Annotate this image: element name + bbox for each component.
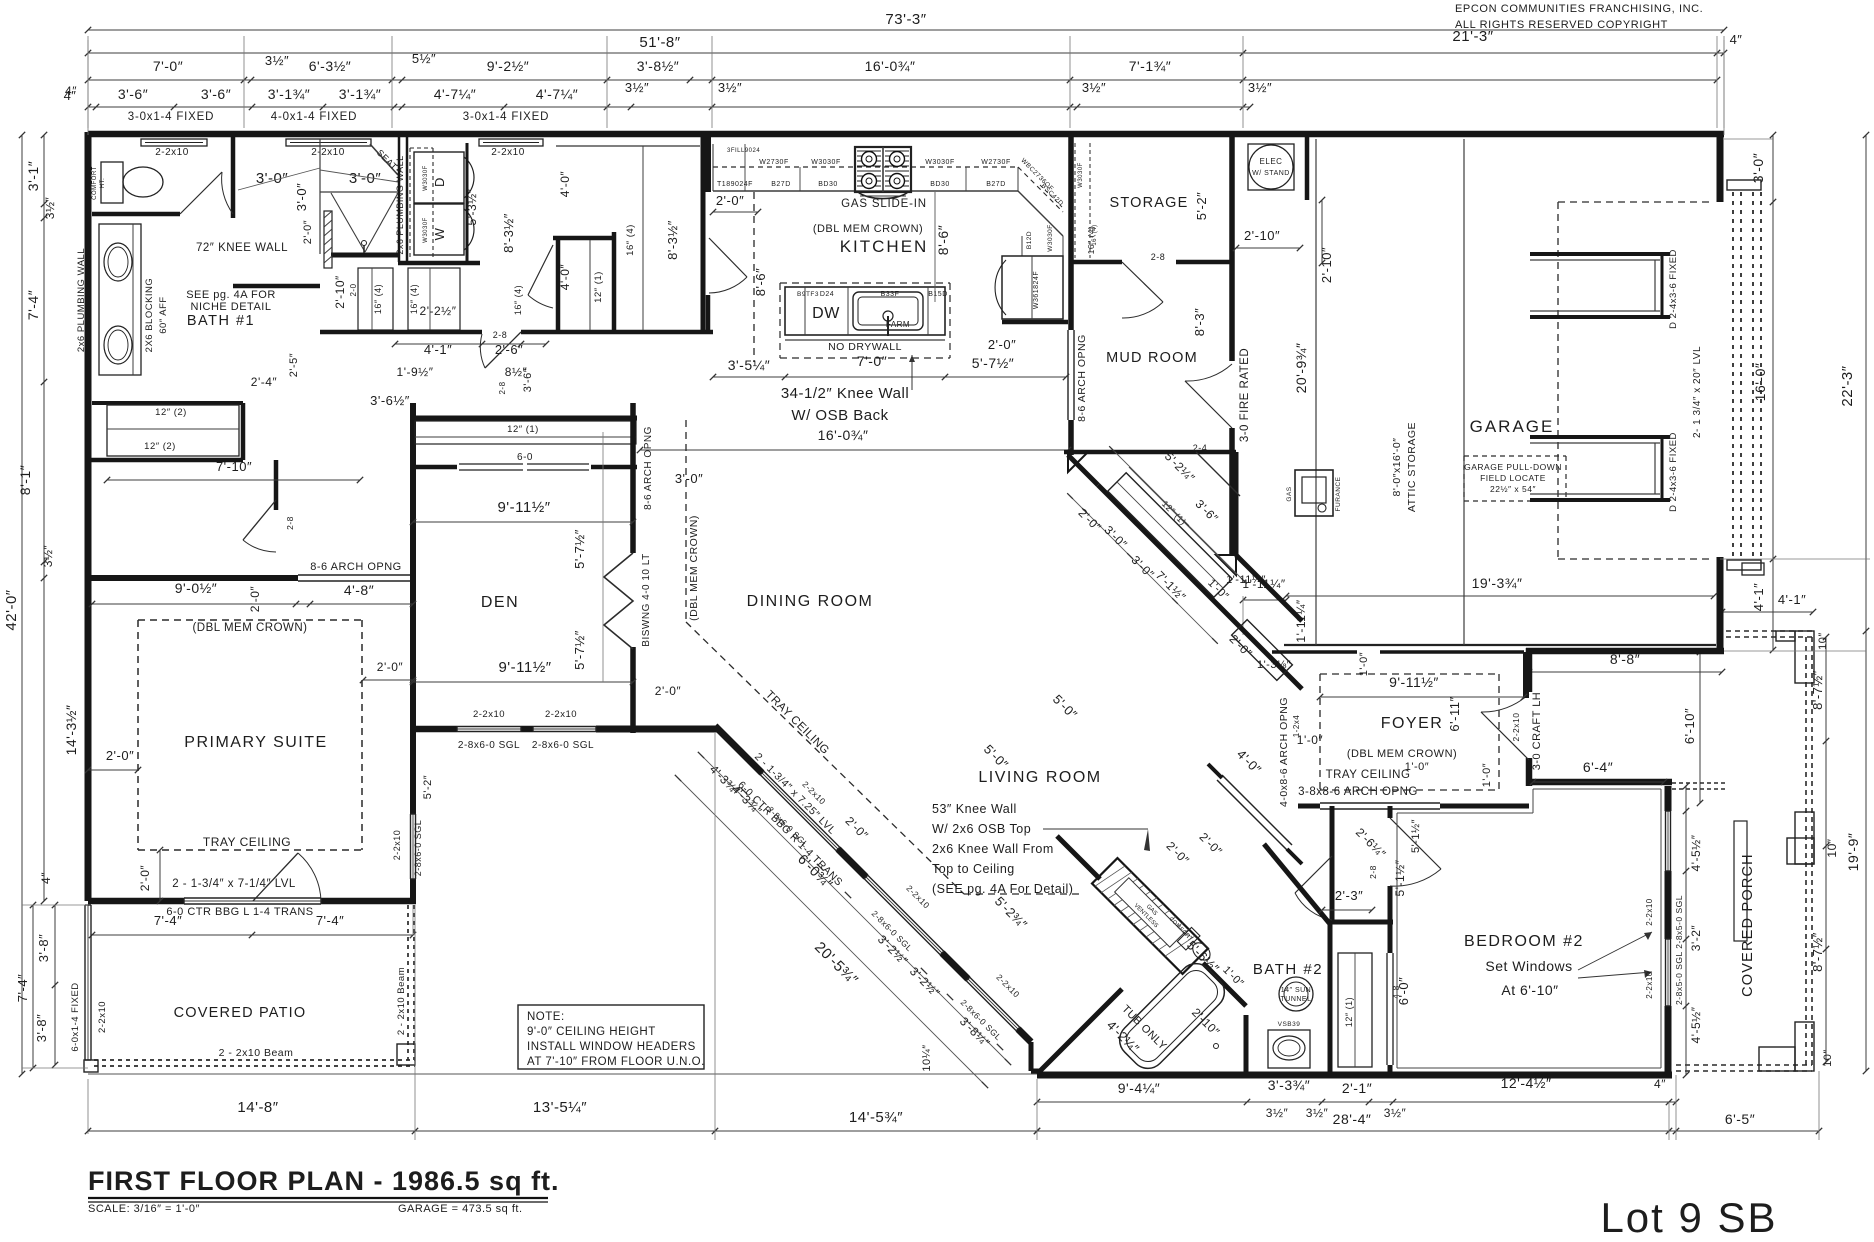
svg-text:2-2x10: 2-2x10 — [1511, 713, 1521, 742]
svg-text:7'-4″: 7'-4″ — [25, 290, 41, 320]
svg-text:COMFORT: COMFORT — [92, 166, 98, 200]
svg-text:3FILL9024: 3FILL9024 — [727, 148, 760, 154]
svg-text:12″ (2): 12″ (2) — [155, 407, 187, 418]
svg-text:DINING ROOM: DINING ROOM — [747, 593, 874, 610]
svg-text:2-2x10: 2-2x10 — [155, 147, 189, 158]
svg-text:(DBL MEM CROWN): (DBL MEM CROWN) — [688, 515, 700, 621]
svg-text:7'-4″: 7'-4″ — [316, 913, 344, 928]
svg-text:(DBL MEM CROWN): (DBL MEM CROWN) — [192, 622, 307, 634]
svg-text:3½″: 3½″ — [1266, 1106, 1289, 1120]
svg-text:8'-3″: 8'-3″ — [1192, 308, 1207, 336]
svg-text:KITCHEN: KITCHEN — [840, 237, 929, 256]
svg-text:16″ (4): 16″ (4) — [1086, 226, 1096, 255]
svg-text:4'-1″: 4'-1″ — [1751, 583, 1766, 611]
svg-text:GARAGE: GARAGE — [1470, 417, 1555, 436]
svg-text:D 2-4x3-6 FIXED: D 2-4x3-6 FIXED — [1668, 249, 1679, 329]
svg-text:3½″: 3½″ — [1248, 80, 1272, 95]
svg-text:(DBL MEM CROWN): (DBL MEM CROWN) — [813, 223, 923, 235]
svg-text:2-8: 2-8 — [285, 516, 295, 530]
svg-text:Lot 9 SB: Lot 9 SB — [1600, 1194, 1777, 1241]
svg-text:7'-4″: 7'-4″ — [15, 974, 30, 1002]
svg-text:VSB39: VSB39 — [1278, 1021, 1301, 1028]
svg-text:3'-6½″: 3'-6½″ — [370, 393, 410, 408]
svg-text:At 6'-10″: At 6'-10″ — [1501, 982, 1558, 998]
svg-text:8-6 ARCH OPNG: 8-6 ARCH OPNG — [643, 426, 654, 510]
svg-text:EPCON COMMUNITIES FRANCHISING,: EPCON COMMUNITIES FRANCHISING, INC. — [1455, 3, 1703, 15]
svg-text:2'-4″: 2'-4″ — [251, 375, 278, 389]
svg-text:3'-0″: 3'-0″ — [256, 170, 289, 187]
svg-text:NOTE:: NOTE: — [527, 1011, 565, 1023]
svg-text:DEN: DEN — [481, 594, 519, 611]
svg-text:6'-4″: 6'-4″ — [1583, 759, 1613, 775]
svg-text:14'-5¾″: 14'-5¾″ — [849, 1109, 903, 1126]
svg-text:COVERED PATIO: COVERED PATIO — [174, 1005, 307, 1021]
svg-text:2'-1″: 2'-1″ — [1342, 1080, 1372, 1096]
svg-text:1'-0″: 1'-0″ — [1481, 763, 1493, 787]
svg-text:GAS: GAS — [1286, 486, 1293, 501]
svg-text:14'-3½″: 14'-3½″ — [63, 705, 79, 756]
svg-text:2 - 2x10 Beam: 2 - 2x10 Beam — [396, 967, 407, 1035]
svg-text:2-2x10: 2-2x10 — [473, 709, 505, 720]
svg-text:2-2x10: 2-2x10 — [491, 147, 525, 158]
svg-text:10¼″: 10¼″ — [921, 1044, 933, 1071]
svg-text:3-8x8-6 ARCH OPNG: 3-8x8-6 ARCH OPNG — [1298, 786, 1418, 798]
svg-text:9'-11½″: 9'-11½″ — [497, 499, 550, 516]
svg-text:W2730F: W2730F — [981, 159, 1010, 166]
svg-text:6-0: 6-0 — [517, 452, 533, 463]
svg-text:2-8: 2-8 — [1151, 252, 1166, 262]
svg-text:6'-10″: 6'-10″ — [1682, 708, 1697, 744]
svg-text:2-2x10: 2-2x10 — [545, 709, 577, 720]
svg-text:3'-6″: 3'-6″ — [118, 86, 148, 102]
svg-text:3'-6″: 3'-6″ — [522, 368, 534, 392]
svg-text:2-2x10: 2-2x10 — [1645, 971, 1654, 999]
svg-text:2-8x5-0 SGL 2-8x5-0 SGL: 2-8x5-0 SGL 2-8x5-0 SGL — [1674, 895, 1684, 1005]
svg-text:SEE pg. 4A FOR: SEE pg. 4A FOR — [186, 289, 276, 301]
svg-text:B33F: B33F — [881, 291, 900, 298]
svg-text:73'-3″: 73'-3″ — [885, 11, 926, 28]
svg-text:STORAGE: STORAGE — [1109, 195, 1188, 211]
svg-text:2'-0″: 2'-0″ — [988, 337, 1016, 352]
svg-text:W3030F: W3030F — [925, 159, 954, 166]
svg-text:4'-8″: 4'-8″ — [344, 582, 374, 598]
svg-text:4'-5½″: 4'-5½″ — [1689, 1006, 1703, 1043]
svg-text:AT 7'-10″ FROM FLOOR U.N.O.: AT 7'-10″ FROM FLOOR U.N.O. — [527, 1056, 705, 1068]
svg-text:2-8x6-0 SGL: 2-8x6-0 SGL — [458, 740, 520, 751]
svg-text:BISWNG 4-0 10 LT: BISWNG 4-0 10 LT — [641, 553, 652, 646]
svg-text:4″: 4″ — [1654, 1077, 1666, 1091]
svg-text:4'-0″: 4'-0″ — [558, 171, 572, 198]
svg-text:8'-6″: 8'-6″ — [753, 268, 768, 296]
svg-text:2 - 2x10 Beam: 2 - 2x10 Beam — [219, 1047, 294, 1059]
svg-text:9'-0″ CEILING HEIGHT: 9'-0″ CEILING HEIGHT — [527, 1026, 656, 1038]
svg-text:12″ (1): 12″ (1) — [507, 424, 539, 435]
svg-text:10″: 10″ — [1825, 838, 1839, 857]
svg-text:TUNNEL: TUNNEL — [1280, 996, 1311, 1003]
svg-text:Set Windows: Set Windows — [1485, 958, 1572, 974]
svg-text:9'-11½″: 9'-11½″ — [1389, 674, 1439, 690]
svg-text:HT.: HT. — [100, 178, 106, 189]
svg-text:Top to Ceiling: Top to Ceiling — [932, 862, 1015, 876]
svg-text:BD30: BD30 — [818, 181, 838, 188]
svg-text:3-0 FIRE RATED: 3-0 FIRE RATED — [1239, 348, 1251, 442]
svg-text:7'-0″: 7'-0″ — [857, 353, 887, 369]
svg-text:3'-1″: 3'-1″ — [25, 161, 41, 191]
svg-text:FARM: FARM — [886, 320, 910, 329]
svg-text:W3030F: W3030F — [423, 217, 429, 243]
svg-text:2-4: 2-4 — [1193, 443, 1208, 453]
svg-text:3'-1¾″: 3'-1¾″ — [268, 86, 311, 102]
svg-text:8'-6″: 8'-6″ — [935, 225, 951, 255]
svg-text:3½″: 3½″ — [1384, 1106, 1407, 1120]
svg-text:5'-7½″: 5'-7½″ — [572, 529, 587, 569]
svg-text:3½″: 3½″ — [718, 80, 742, 95]
svg-text:42'-0″: 42'-0″ — [3, 589, 20, 630]
svg-text:60″ AFF: 60″ AFF — [158, 296, 169, 334]
svg-text:3'-8″: 3'-8″ — [36, 934, 51, 962]
svg-text:12″ (1): 12″ (1) — [1344, 997, 1354, 1027]
svg-text:8'-3½″: 8'-3½″ — [665, 220, 680, 260]
svg-text:2'-0″: 2'-0″ — [377, 660, 404, 674]
svg-text:9'-4¼″: 9'-4¼″ — [1118, 1080, 1161, 1096]
svg-text:3'-1¾″: 3'-1¾″ — [339, 86, 382, 102]
svg-text:2'-0″: 2'-0″ — [655, 684, 682, 698]
svg-text:GARAGE = 473.5 sq ft.: GARAGE = 473.5 sq ft. — [398, 1203, 523, 1215]
svg-text:4'-7¼″: 4'-7¼″ — [434, 86, 477, 102]
svg-text:8'-3½″: 8'-3½″ — [501, 213, 516, 253]
svg-text:16'-0¾″: 16'-0¾″ — [818, 427, 869, 443]
svg-text:TRAY CEILING: TRAY CEILING — [203, 835, 291, 849]
svg-text:3'-0″: 3'-0″ — [1750, 153, 1766, 183]
svg-text:W2730F: W2730F — [759, 159, 788, 166]
svg-text:2-2x10: 2-2x10 — [97, 1001, 108, 1033]
svg-text:T189024F: T189024F — [717, 181, 753, 188]
svg-text:34-1/2″ Knee Wall: 34-1/2″ Knee Wall — [781, 385, 909, 402]
svg-text:1'-0″: 1'-0″ — [1358, 652, 1370, 676]
svg-text:6'-5″: 6'-5″ — [1725, 1111, 1755, 1127]
svg-text:16″ (4): 16″ (4) — [513, 285, 523, 315]
svg-text:2x6 Knee Wall From: 2x6 Knee Wall From — [932, 842, 1054, 856]
svg-text:BD30: BD30 — [930, 181, 950, 188]
svg-text:3-0 CRAFT LH: 3-0 CRAFT LH — [1531, 692, 1543, 771]
svg-text:19'-9″: 19'-9″ — [1845, 833, 1861, 872]
svg-text:10″: 10″ — [1822, 1049, 1834, 1067]
svg-text:12″ (2): 12″ (2) — [144, 441, 176, 452]
svg-text:3'-0″: 3'-0″ — [675, 471, 703, 486]
svg-text:16'-0¾″: 16'-0¾″ — [865, 58, 916, 74]
svg-text:W361824F: W361824F — [1033, 271, 1040, 309]
svg-text:W: W — [432, 227, 447, 240]
svg-text:3'-0″: 3'-0″ — [294, 183, 309, 211]
svg-text:3-0x1-4 FIXED: 3-0x1-4 FIXED — [128, 111, 214, 123]
svg-text:GAS SLIDE-IN: GAS SLIDE-IN — [841, 198, 927, 210]
svg-text:2'-3″: 2'-3″ — [1335, 888, 1363, 903]
svg-text:B27D: B27D — [986, 181, 1006, 188]
svg-text:2'-10″: 2'-10″ — [1319, 247, 1334, 283]
svg-text:W3030F: W3030F — [811, 159, 840, 166]
svg-text:5'-1½″: 5'-1½″ — [1393, 859, 1407, 896]
svg-text:10″: 10″ — [1817, 632, 1829, 650]
svg-text:5'-3½″: 5'-3½″ — [465, 188, 479, 225]
svg-text:5'-2″: 5'-2″ — [1194, 192, 1209, 220]
svg-text:16″ (4): 16″ (4) — [409, 284, 419, 314]
svg-text:2'-5″: 2'-5″ — [288, 353, 300, 377]
svg-text:1'-3⅛″: 1'-3⅛″ — [1257, 659, 1291, 671]
svg-text:14'-8″: 14'-8″ — [237, 1099, 278, 1116]
svg-text:MUD ROOM: MUD ROOM — [1106, 350, 1198, 366]
svg-text:5'-7½″: 5'-7½″ — [972, 355, 1015, 371]
svg-text:8-6 ARCH OPNG: 8-6 ARCH OPNG — [310, 561, 401, 573]
svg-text:5'-2″: 5'-2″ — [422, 775, 434, 799]
svg-text:BATH #1: BATH #1 — [187, 313, 255, 329]
svg-text:2-2x10: 2-2x10 — [1645, 898, 1654, 926]
svg-text:14″ SUN: 14″ SUN — [1281, 987, 1312, 994]
svg-text:BEDROOM #2: BEDROOM #2 — [1464, 933, 1584, 950]
svg-text:9'-0½″: 9'-0½″ — [175, 580, 218, 596]
svg-text:NICHE DETAIL: NICHE DETAIL — [191, 301, 272, 313]
svg-text:4'-1″: 4'-1″ — [1778, 592, 1806, 607]
svg-text:2 - 1-3/4″ x 7-1/4″ LVL: 2 - 1-3/4″ x 7-1/4″ LVL — [172, 878, 296, 890]
svg-text:3'-3¾″: 3'-3¾″ — [1268, 1077, 1311, 1093]
svg-text:W/ OSB Back: W/ OSB Back — [791, 407, 888, 424]
svg-text:D 2-4x3-6 FIXED: D 2-4x3-6 FIXED — [1668, 432, 1679, 512]
svg-text:BATH #2: BATH #2 — [1253, 961, 1323, 978]
svg-text:8-6 ARCH OPNG: 8-6 ARCH OPNG — [1076, 334, 1088, 422]
svg-text:PRIMARY SUITE: PRIMARY SUITE — [184, 734, 327, 751]
svg-text:W/ 2x6 OSB Top: W/ 2x6 OSB Top — [932, 822, 1031, 836]
svg-text:2X6 BLOCKING: 2X6 BLOCKING — [144, 278, 155, 353]
svg-text:GARAGE PULL-DOWN: GARAGE PULL-DOWN — [1464, 462, 1562, 472]
svg-text:4-0x8-6 ARCH OPNG: 4-0x8-6 ARCH OPNG — [1278, 697, 1290, 807]
svg-text:1'-9½″: 1'-9½″ — [397, 365, 434, 379]
svg-text:19'-3¾″: 19'-3¾″ — [1472, 575, 1523, 591]
svg-text:6-0 CTR BBG L 1-4 TRANS: 6-0 CTR BBG L 1-4 TRANS — [166, 906, 313, 918]
svg-text:W3030F: W3030F — [1078, 162, 1084, 188]
svg-text:2x6 PLUMBING WALL: 2x6 PLUMBING WALL — [395, 155, 405, 254]
svg-text:W/ STAND: W/ STAND — [1252, 170, 1290, 177]
svg-text:3½″: 3½″ — [265, 53, 289, 68]
svg-text:TRAY CEILING: TRAY CEILING — [1326, 769, 1411, 781]
svg-text:DW: DW — [812, 305, 840, 322]
svg-text:SCALE: 3/16″ = 1'-0″: SCALE: 3/16″ = 1'-0″ — [88, 1203, 200, 1215]
svg-text:3½″: 3½″ — [1082, 80, 1106, 95]
svg-text:4'-0″: 4'-0″ — [558, 264, 572, 291]
svg-text:4″: 4″ — [1730, 32, 1743, 47]
svg-text:ELEC: ELEC — [1260, 157, 1283, 166]
svg-text:2-8: 2-8 — [493, 330, 508, 340]
svg-text:1'-0″: 1'-0″ — [1405, 761, 1429, 773]
svg-text:3'-8½″: 3'-8½″ — [637, 58, 680, 74]
svg-text:NO DRYWALL: NO DRYWALL — [828, 341, 902, 353]
svg-text:COVERED PORCH: COVERED PORCH — [1740, 853, 1756, 997]
svg-text:6'-0″: 6'-0″ — [1396, 977, 1411, 1005]
svg-text:W3030F: W3030F — [1047, 224, 1054, 252]
svg-text:9'-2½″: 9'-2½″ — [487, 58, 530, 74]
svg-text:B9TF3: B9TF3 — [797, 291, 819, 298]
svg-text:3'-8″: 3'-8″ — [34, 1014, 49, 1042]
svg-text:3½″: 3½″ — [41, 545, 55, 568]
svg-text:D24: D24 — [820, 291, 834, 298]
svg-text:2'-2½″: 2'-2½″ — [420, 304, 457, 318]
svg-text:2'-0″: 2'-0″ — [248, 586, 262, 613]
svg-text:LIVING ROOM: LIVING ROOM — [978, 769, 1101, 786]
svg-text:7'-0″: 7'-0″ — [153, 58, 183, 74]
svg-text:B12D: B12D — [1026, 231, 1033, 249]
svg-text:8'-0″x16'-0″: 8'-0″x16'-0″ — [1391, 438, 1403, 497]
svg-text:3'-5¼″: 3'-5¼″ — [728, 357, 771, 373]
svg-text:2-8: 2-8 — [1368, 865, 1378, 879]
svg-text:2-8x6-0 SGL: 2-8x6-0 SGL — [532, 740, 594, 751]
svg-text:2- 1 3/4″ x 20″ LVL: 2- 1 3/4″ x 20″ LVL — [1692, 346, 1703, 438]
svg-text:16″ (4): 16″ (4) — [373, 284, 383, 314]
svg-text:2'-0″: 2'-0″ — [716, 193, 744, 208]
svg-text:3'-2″: 3'-2″ — [1689, 925, 1703, 952]
svg-text:22½″ x 54″: 22½″ x 54″ — [1490, 484, 1536, 494]
svg-text:3-0x1-4 FIXED: 3-0x1-4 FIXED — [463, 111, 549, 123]
svg-text:(DBL MEM CROWN): (DBL MEM CROWN) — [1347, 748, 1457, 760]
svg-text:ALL RIGHTS RESERVED COPYRIGHT: ALL RIGHTS RESERVED COPYRIGHT — [1455, 19, 1668, 31]
svg-text:INSTALL WINDOW HEADERS: INSTALL WINDOW HEADERS — [527, 1041, 696, 1053]
svg-text:9'-11½″: 9'-11½″ — [498, 659, 551, 676]
svg-text:7'-1¾″: 7'-1¾″ — [1129, 58, 1172, 74]
svg-text:7'-10″: 7'-10″ — [216, 459, 252, 474]
svg-text:53″ Knee Wall: 53″ Knee Wall — [932, 802, 1017, 816]
svg-text:16″ (4): 16″ (4) — [625, 224, 636, 256]
svg-text:4'-5½″: 4'-5½″ — [1689, 834, 1703, 871]
svg-text:2'-0″: 2'-0″ — [138, 865, 152, 892]
svg-text:22'-3″: 22'-3″ — [1839, 365, 1856, 406]
svg-text:2-8: 2-8 — [498, 381, 507, 394]
svg-text:2'-0″: 2'-0″ — [106, 748, 134, 763]
svg-text:6'-11″: 6'-11″ — [1447, 696, 1462, 731]
svg-text:2'-10″: 2'-10″ — [333, 275, 347, 309]
svg-text:2'-0″: 2'-0″ — [302, 220, 314, 244]
svg-text:2-2x10: 2-2x10 — [311, 147, 345, 158]
svg-text:1'-0″: 1'-0″ — [1297, 733, 1324, 747]
svg-text:B27D: B27D — [771, 181, 791, 188]
svg-text:3½″: 3½″ — [625, 80, 649, 95]
svg-text:B15D: B15D — [928, 291, 948, 298]
svg-text:16'-0″: 16'-0″ — [1752, 363, 1768, 402]
svg-text:FIRST FLOOR PLAN - 1986.5 sq f: FIRST FLOOR PLAN - 1986.5 sq ft. — [88, 1166, 560, 1196]
svg-text:5½″: 5½″ — [412, 51, 436, 66]
svg-text:2-2x10: 2-2x10 — [392, 830, 402, 861]
svg-text:6-0x1-4 FIXED: 6-0x1-4 FIXED — [70, 982, 81, 1051]
svg-text:FURANCE: FURANCE — [1335, 476, 1342, 511]
svg-text:28'-4″: 28'-4″ — [1333, 1111, 1372, 1127]
svg-text:2-8x6-0 SGL: 2-8x6-0 SGL — [413, 820, 423, 877]
svg-text:3½″: 3½″ — [1306, 1106, 1329, 1120]
svg-text:3'-6″: 3'-6″ — [201, 86, 231, 102]
svg-text:3½″: 3½″ — [43, 197, 57, 220]
svg-text:13'-5¼″: 13'-5¼″ — [533, 1099, 587, 1116]
svg-text:FOYER: FOYER — [1381, 715, 1444, 732]
svg-text:5'-7½″: 5'-7½″ — [572, 630, 587, 670]
svg-text:2x6 PLUMBING WALL: 2x6 PLUMBING WALL — [76, 248, 87, 352]
svg-text:4″: 4″ — [65, 84, 77, 98]
svg-text:FIELD LOCATE: FIELD LOCATE — [1480, 473, 1546, 483]
svg-text:51'-8″: 51'-8″ — [639, 34, 680, 51]
svg-text:4-0x1-4 FIXED: 4-0x1-4 FIXED — [271, 111, 357, 123]
svg-text:20'-9¾″: 20'-9¾″ — [1293, 343, 1309, 394]
svg-text:2-0: 2-0 — [349, 283, 358, 296]
svg-text:D: D — [432, 177, 447, 187]
svg-text:ATTIC STORAGE: ATTIC STORAGE — [1406, 422, 1418, 512]
svg-text:12″ (1): 12″ (1) — [593, 271, 604, 303]
svg-text:4'-7¼″: 4'-7¼″ — [536, 86, 579, 102]
svg-text:W3030F: W3030F — [423, 165, 429, 191]
svg-text:5'-1½″: 5'-1½″ — [1410, 819, 1422, 853]
svg-text:1'-11¼″: 1'-11¼″ — [1226, 574, 1266, 586]
svg-text:6'-3½″: 6'-3½″ — [309, 58, 352, 74]
svg-text:8'-1″: 8'-1″ — [17, 465, 33, 495]
svg-text:72″ KNEE WALL: 72″ KNEE WALL — [196, 242, 288, 254]
svg-text:2'-10″: 2'-10″ — [1244, 228, 1280, 243]
svg-text:4″: 4″ — [39, 872, 53, 884]
